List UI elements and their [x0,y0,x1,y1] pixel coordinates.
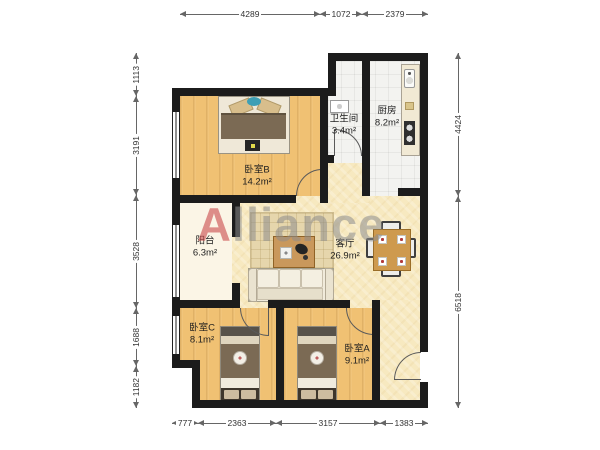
sink-icon [404,69,415,88]
plate-icon [397,235,406,244]
sofa-back-icon [257,288,323,300]
room-name: 厨房 [375,106,399,118]
dim-value: 3528 [131,240,141,263]
sheet-icon [221,378,259,388]
arrow-left-icon [380,420,386,426]
room-area: 9.1m² [344,356,369,368]
wall [398,188,428,196]
dim-left-3: 3528 [130,195,142,308]
plate-icon [397,257,406,266]
seat-cushion-icon [257,269,279,288]
dim-value: 6518 [453,291,463,314]
pillow-icon [301,390,316,399]
pillow-icon [241,390,256,399]
arrow-up-icon [133,96,139,102]
dim-left-5: 1182 [130,366,142,408]
wall [320,96,328,203]
room-area: 8.2m² [375,118,399,130]
room-name: 卧室C [189,323,215,335]
bed-band [221,336,259,344]
dim-value: 1113 [131,64,141,86]
round-pillow-icon [233,351,247,365]
kitchen-counter-icon [401,64,420,156]
kitchen-label: 厨房 8.2m² [375,106,399,131]
wall [268,300,284,308]
wall [192,360,200,408]
dim-left-4: 1688 [130,308,142,366]
seat-cushion-icon [301,269,323,288]
room-name: 卧室B [242,165,272,177]
room-name: 卧室A [344,344,369,356]
dim-value: 1383 [393,418,416,428]
dim-value: 3191 [131,134,141,157]
dim-top-2: 1072 [320,8,362,20]
dim-top-1: 4289 [180,8,320,20]
dim-value: 4424 [453,113,463,136]
window-icon [172,316,180,354]
window-icon [172,112,180,178]
decor-icon [293,242,309,257]
tray-dot-icon [251,144,255,148]
wall [420,53,428,352]
arrow-right-icon [422,420,428,426]
dim-value: 1072 [330,9,353,19]
wall [276,308,284,400]
room-name: 客厅 [330,239,360,251]
cutting-board-icon [405,102,414,110]
sofa-icon [248,268,334,302]
living-room-label: 客厅 26.9m² [330,239,360,264]
plate-icon [378,257,387,266]
floor-plan: 卧室B 14.2m² 卫生间 3.4m² 厨房 8.2m² 阳台 6.3m² 客… [0,0,600,450]
dim-top-3: 2379 [362,8,428,20]
arrow-up-icon [455,196,461,202]
double-bed-icon [218,96,290,154]
window-icon [172,225,180,297]
arrow-left-icon [362,11,368,17]
arrow-up-icon [133,308,139,314]
room-area: 14.2m² [242,177,272,189]
wall [362,61,370,196]
armrest-icon [325,268,334,302]
dim-value: 2379 [384,9,407,19]
coffee-table-icon [273,236,315,268]
room-area: 6.3m² [193,248,217,260]
corner-cutout [158,366,196,410]
dim-right-1: 4424 [452,53,464,196]
sheet-icon [298,378,336,388]
dim-value: 3157 [317,418,340,428]
arrow-up-icon [133,53,139,59]
blanket-icon [221,344,259,378]
dim-value: 1688 [131,326,141,349]
bed-band [298,336,336,344]
arrow-left-icon [198,420,204,426]
plate-icon [378,235,387,244]
arrow-down-icon [133,402,139,408]
room-name: 阳台 [193,236,217,248]
blanket-icon [298,344,336,378]
wall [372,300,380,400]
armrest-icon [248,268,257,302]
pillow-icon [318,390,333,399]
room-area: 3.4m² [330,126,359,138]
bed-icon [297,326,337,402]
wall [232,203,240,237]
arrow-up-icon [133,195,139,201]
dim-value: 777 [176,418,194,428]
bathroom-label: 卫生间 3.4m² [330,114,359,139]
pillow-icon [224,390,239,399]
dim-right-2: 6518 [452,196,464,408]
room-name: 卫生间 [330,114,359,126]
arrow-left-icon [180,11,186,17]
dim-value: 2363 [226,418,249,428]
arrow-right-icon [422,11,428,17]
blanket-icon [221,113,286,139]
headboard-icon [298,327,336,336]
bedroom-c-label: 卧室C 8.1m² [189,323,215,348]
wall [320,155,334,163]
wall [172,88,328,96]
stove-icon [404,121,415,145]
room-area: 26.9m² [330,251,360,263]
bedroom-a-label: 卧室A 9.1m² [344,344,369,369]
wall [328,53,428,61]
arrow-down-icon [455,402,461,408]
bathroom-sink-icon [330,100,349,113]
wall [172,195,296,203]
dining-table-icon [373,229,411,271]
bedroom-b-label: 卧室B 14.2m² [242,165,272,190]
arrow-left-icon [320,11,326,17]
dim-bottom-1: 777 [172,417,198,429]
arrow-up-icon [133,366,139,372]
wall [172,300,238,308]
arrow-up-icon [455,53,461,59]
room-area: 8.1m² [189,335,215,347]
balcony-label: 阳台 6.3m² [193,236,217,261]
dim-value: 1182 [131,376,141,398]
bed-icon [220,326,260,402]
cushion-icon [247,97,261,106]
wall [284,300,350,308]
decor-box-icon [280,247,292,259]
dim-left-2: 3191 [130,96,142,195]
dim-left-1: 1113 [130,53,142,96]
dim-bottom-4: 1383 [380,417,428,429]
decor-dot-icon [303,255,308,260]
seat-cushion-icon [279,269,301,288]
arrow-left-icon [276,420,282,426]
dim-bottom-3: 3157 [276,417,380,429]
dim-value: 4289 [239,9,262,19]
round-pillow-icon [310,351,324,365]
dim-bottom-2: 2363 [198,417,276,429]
wall [198,400,428,408]
